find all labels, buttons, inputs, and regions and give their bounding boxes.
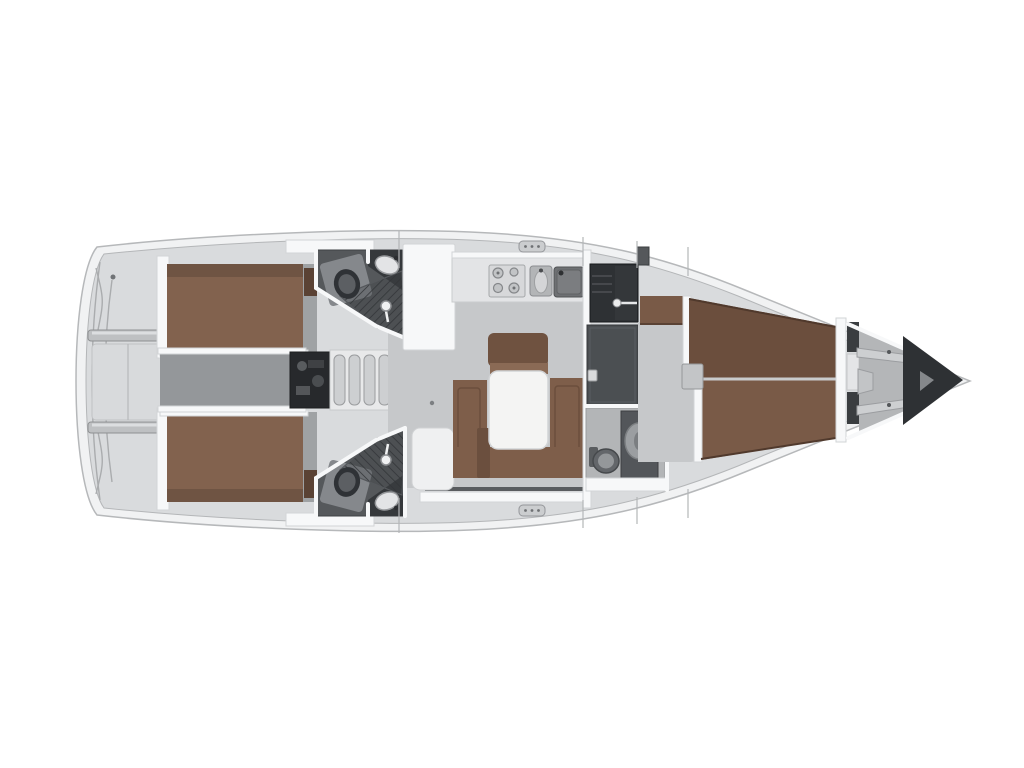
sofa-backrest xyxy=(488,333,548,367)
deck-fitting-dot xyxy=(111,275,116,280)
deck-hatch-icon xyxy=(519,241,545,252)
cabinet-block xyxy=(403,244,455,350)
wardrobe xyxy=(587,325,638,405)
sink-icon xyxy=(530,266,552,296)
galley xyxy=(452,252,585,302)
stove-burners-icon xyxy=(489,265,525,297)
deck-hatch-icon xyxy=(519,505,545,516)
engine-compartment xyxy=(290,352,330,408)
forepeak xyxy=(836,318,963,442)
keel-block xyxy=(858,369,873,394)
bow-bulkhead xyxy=(836,318,846,442)
berth-step xyxy=(682,364,703,389)
aft-cabin-port xyxy=(157,256,317,358)
dinette-table xyxy=(489,371,548,449)
seat-block xyxy=(412,428,454,490)
step-tread xyxy=(334,355,345,405)
companionway-steps xyxy=(330,350,394,410)
yacht-floor-plan xyxy=(0,0,1024,768)
step-tread xyxy=(349,355,360,405)
wet-locker xyxy=(590,264,638,322)
yacht-floor-plan-figure xyxy=(0,0,1024,768)
aft-corridor xyxy=(158,348,306,412)
wardrobe-latch xyxy=(588,370,597,381)
deck-fitting xyxy=(637,247,649,265)
step-tread xyxy=(364,355,375,405)
sink-icon xyxy=(554,267,584,297)
aft-cabin-starboard xyxy=(157,408,317,510)
